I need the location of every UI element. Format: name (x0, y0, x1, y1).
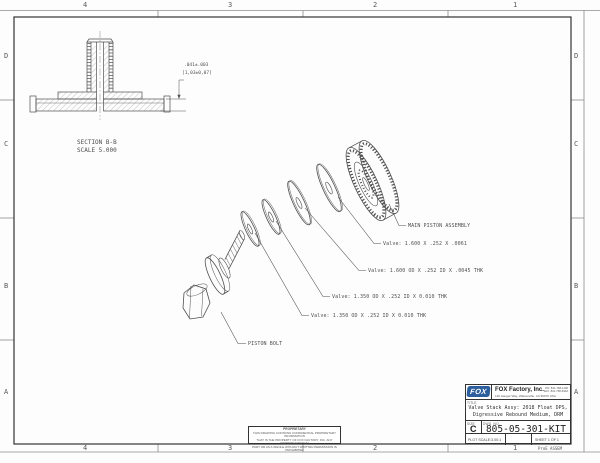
callout-piston-bolt: PISTON BOLT (248, 341, 282, 347)
section-title: SECTION B-B (77, 139, 117, 146)
callout-valve-1: Valve: 1.600 X .252 X .0061 (383, 241, 467, 247)
callout-valve-2: Valve: 1.600 OD X .252 ID X .0045 THK (368, 268, 483, 274)
zone-left-c: C (4, 140, 8, 148)
company-fax: FAX: 831-768-9342 (544, 390, 568, 393)
company-phones: PH: 831-768-1100 FAX: 831-768-9342 (544, 387, 568, 394)
size-cell: SIZE C (466, 421, 482, 433)
zone-left-d: D (4, 52, 8, 60)
dimension-mm: [1,03±0,07] (182, 71, 212, 76)
zone-bottom-4: 4 (83, 444, 87, 452)
zone-top-1: 1 (513, 1, 517, 9)
dwg-cell: DWG. NO. 805-05-301-KIT (482, 421, 570, 433)
zone-right-a: A (574, 388, 578, 396)
company-address: 130 Hangar Way, Watsonville, CA 95076 US… (495, 394, 556, 398)
zone-bottom-3: 3 (228, 444, 232, 452)
zone-bottom-1: 1 (513, 444, 517, 452)
valve-shim-1 (238, 209, 264, 248)
company-cell: FOX Factory, Inc. 130 Hangar Way, Watson… (492, 385, 570, 399)
callout-main-piston: MAIN PISTON ASSEMBLY (408, 223, 470, 229)
main-piston-linework (339, 136, 407, 225)
fox-logo: FOX (466, 386, 490, 397)
section-view-linework (30, 31, 186, 120)
margin-note: ProE ASSEM (538, 446, 562, 451)
callout-valve-3: Valve: 1.350 OD X .252 ID X 0.010 THK (332, 294, 447, 300)
logo-cell: FOX (466, 385, 492, 399)
zone-top-3: 3 (228, 1, 232, 9)
proprietary-note: PROPRIETARY THIS DRAWING CONTAINS CONFID… (248, 426, 341, 444)
callout-valve-4: Valve: 1.350 OD X .252 ID X 0.010 THK (311, 313, 426, 319)
zone-top-4: 4 (83, 1, 87, 9)
dimension-inch: .041±.003 (184, 63, 208, 68)
proprietary-line4: PART OR AS A WHOLE WITHOUT WRITTEN PERMI… (249, 446, 340, 453)
exploded-view-linework (183, 136, 406, 319)
size-dwg-row: SIZE C DWG. NO. 805-05-301-KIT (466, 420, 570, 433)
zone-top-2: 2 (373, 1, 377, 9)
valve-shim-2 (259, 197, 285, 236)
zone-bottom-2: 2 (373, 444, 377, 452)
engineering-drawing-sheet: { "frame": { "zones_top": ["4", "3", "2"… (0, 0, 600, 463)
zone-right-c: C (574, 140, 578, 148)
drawing-title-line1: Valve Stack Assy: 2018 Float DPS, (466, 405, 570, 412)
zone-left-b: B (4, 282, 8, 290)
spare-cell (506, 434, 532, 445)
valve-shim-3 (284, 178, 315, 227)
valve-shim-4 (313, 161, 347, 214)
title-block: FOX FOX Factory, Inc. 130 Hangar Way, Wa… (465, 384, 571, 444)
zone-left-a: A (4, 388, 8, 396)
title-block-header-row: FOX FOX Factory, Inc. 130 Hangar Way, Wa… (466, 385, 570, 399)
company-name: FOX Factory, Inc. (495, 387, 544, 393)
section-scale: SCALE 5.000 (77, 147, 117, 154)
zone-right-b: B (574, 282, 578, 290)
title-row: TITLE Valve Stack Assy: 2018 Float DPS, … (466, 399, 570, 420)
zone-right-d: D (574, 52, 578, 60)
plot-scale: PLOT SCALE:3.00:1 (468, 438, 501, 442)
sheet-cell: SHEET 1 OF 1 (532, 434, 570, 445)
drawing-title-line2: Digressive Rebound Medium, DRM (466, 412, 570, 419)
sheet-info: SHEET 1 OF 1 (535, 438, 559, 442)
plot-scale-cell: PLOT SCALE:3.00:1 (466, 434, 506, 445)
scale-sheet-row: PLOT SCALE:3.00:1 SHEET 1 OF 1 (466, 433, 570, 445)
